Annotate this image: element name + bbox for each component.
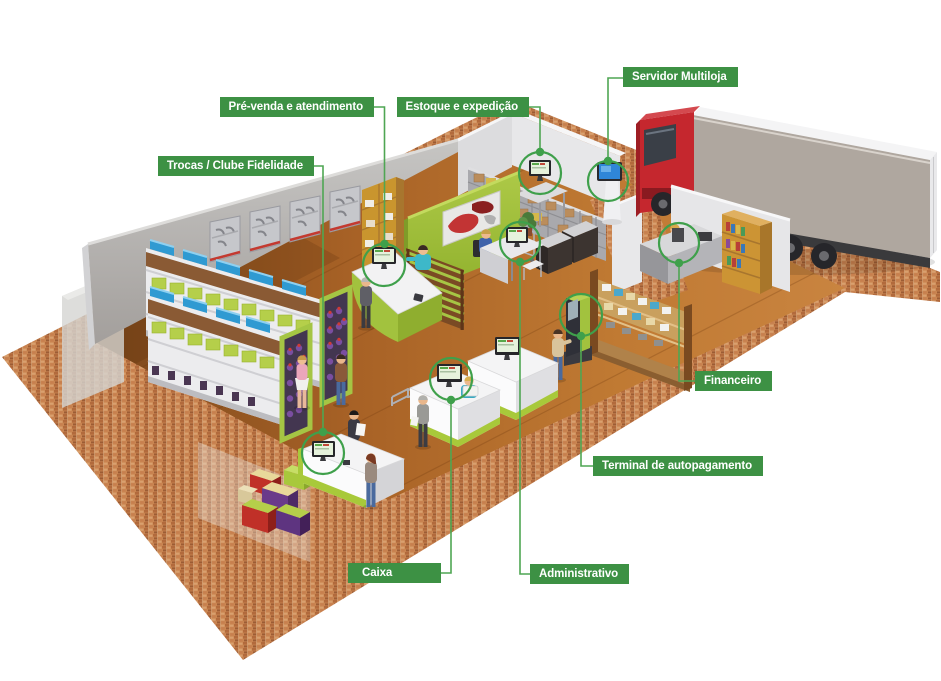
callout-label: Servidor Multiloja xyxy=(632,71,727,83)
callout-caixa: Caixa xyxy=(348,563,441,583)
callout-pre-venda-e-atendimento: Pré-venda e atendimento xyxy=(220,97,374,117)
store-layout-diagram: Pré-venda e atendimento Estoque e expedi… xyxy=(0,0,941,681)
callout-financeiro: Financeiro xyxy=(695,371,772,391)
callout-estoque-e-expedicao: Estoque e expedição xyxy=(397,97,530,117)
callout-trocas-clube-fidelidade: Trocas / Clube Fidelidade xyxy=(158,156,314,176)
callout-administrativo: Administrativo xyxy=(530,564,629,584)
callout-servidor-multiloja: Servidor Multiloja xyxy=(623,67,738,87)
callout-label: Administrativo xyxy=(539,568,618,580)
bookshelf xyxy=(722,210,772,294)
callout-label: Financeiro xyxy=(704,375,761,387)
callout-label: Estoque e expedição xyxy=(406,101,519,113)
callout-terminal-de-autopagamento: Terminal de autopagamento xyxy=(593,456,763,476)
callout-label: Pré-venda e atendimento xyxy=(229,101,363,113)
self-payment-kiosk xyxy=(564,293,592,366)
callout-label: Terminal de autopagamento xyxy=(602,460,752,472)
callout-label: Trocas / Clube Fidelidade xyxy=(167,160,303,172)
callout-label: Caixa xyxy=(362,567,392,579)
gondola-endcap xyxy=(322,288,350,404)
